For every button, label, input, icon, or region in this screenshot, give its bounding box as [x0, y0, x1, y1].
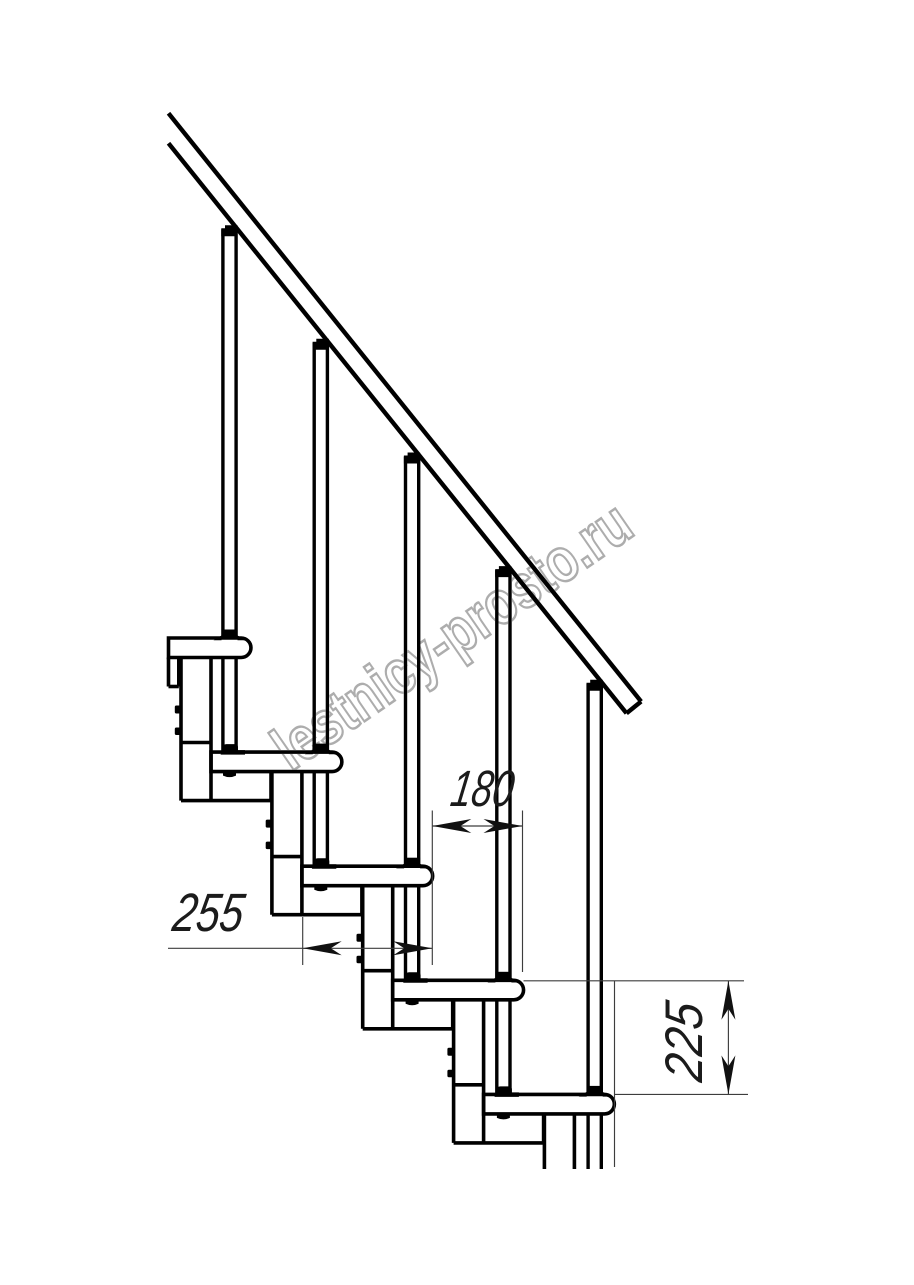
svg-text:180: 180 — [447, 760, 518, 817]
svg-text:225: 225 — [655, 997, 714, 1085]
svg-text:255: 255 — [168, 882, 249, 943]
